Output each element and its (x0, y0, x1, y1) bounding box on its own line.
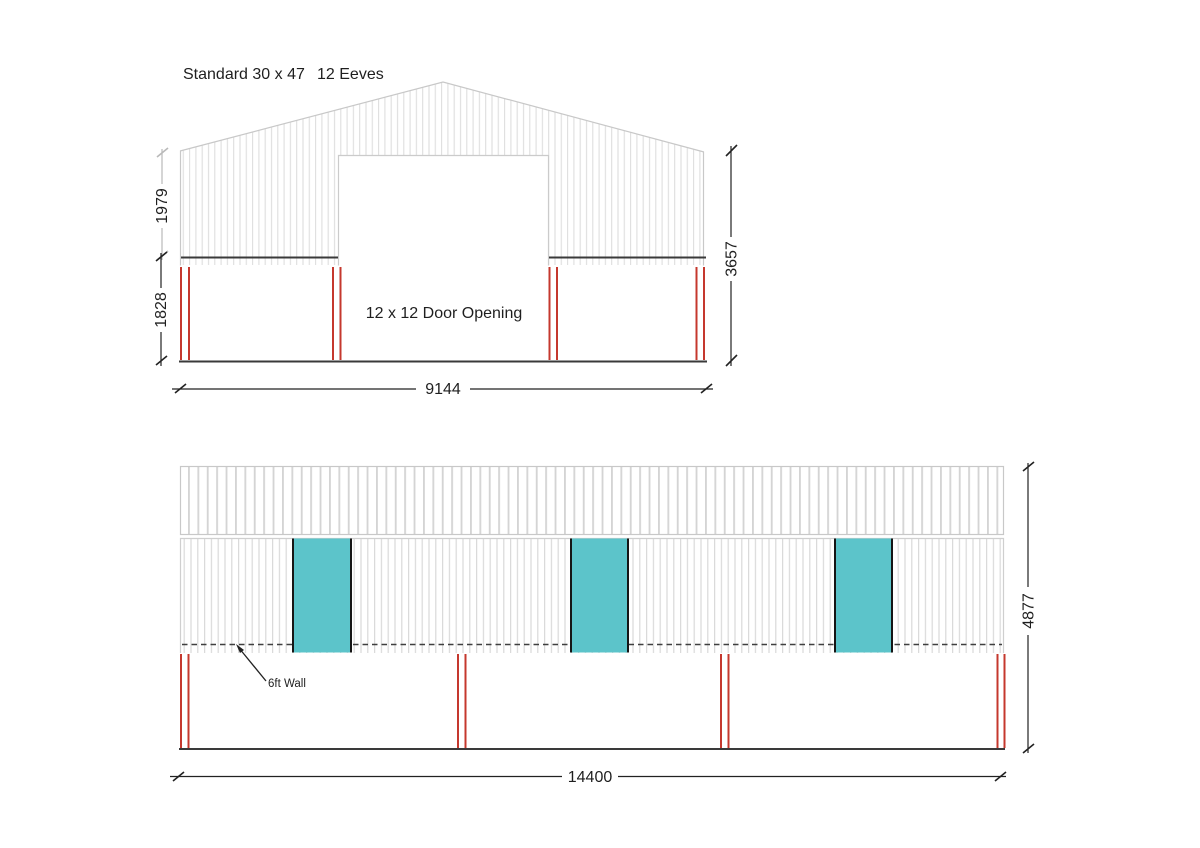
dim-value-upper-panel: 1979 (154, 188, 171, 224)
dim-upper-panel: 1979 (154, 148, 171, 260)
walk-door (836, 539, 891, 653)
side-elevation-view: 6ft Wall 4877 14400 (170, 462, 1038, 786)
building-drawing-svg: Standard 30 x 47 12 Eeves 12 x 12 Door O… (0, 0, 1200, 848)
dim-value-side-height: 4877 (1021, 593, 1038, 629)
dim-side-total-height: 4877 (1021, 462, 1038, 753)
wall-height-label: 6ft Wall (268, 678, 306, 690)
side-frame-posts (181, 654, 1005, 748)
dim-lower-wall: 1828 (153, 252, 170, 366)
door-opening-label: 12 x 12 Door Opening (366, 305, 523, 322)
dim-side-width: 14400 (170, 769, 1006, 786)
drawing-title-eaves: 12 Eeves (317, 66, 384, 83)
dim-value-end-width: 9144 (425, 381, 461, 398)
dim-end-width: 9144 (172, 381, 713, 398)
dim-value-end-height: 3657 (724, 241, 741, 277)
end-elevation-view: 12 x 12 Door Opening 9144 3657 1979 (153, 82, 741, 398)
blueprint-page: Standard 30 x 47 12 Eeves 12 x 12 Door O… (0, 0, 1200, 848)
dim-value-side-width: 14400 (568, 769, 613, 786)
walk-door (572, 539, 627, 653)
dim-end-total-height: 3657 (724, 145, 741, 366)
door-opening-outline (339, 156, 549, 266)
dim-value-lower-wall: 1828 (153, 292, 170, 328)
walk-door (294, 539, 350, 653)
roof-band-ribs (181, 467, 1004, 535)
drawing-title-model: Standard 30 x 47 (183, 66, 305, 83)
